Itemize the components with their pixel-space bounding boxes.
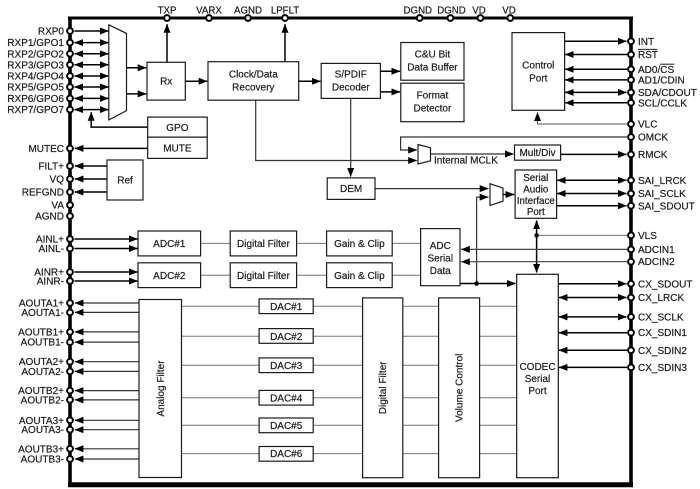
svg-text:VLC: VLC [638, 120, 657, 131]
svg-text:Volume Control: Volume Control [455, 354, 466, 422]
svg-text:AD1/CDIN: AD1/CDIN [638, 75, 685, 86]
svg-text:AOUTA1-: AOUTA1- [21, 308, 64, 319]
svg-text:DGND: DGND [437, 5, 466, 16]
svg-text:RXP1/GPO1: RXP1/GPO1 [7, 38, 64, 49]
svg-text:VA: VA [51, 201, 64, 212]
svg-text:Analog Filter: Analog Filter [156, 360, 167, 417]
svg-text:RXP6/GPO6: RXP6/GPO6 [7, 94, 64, 105]
svg-text:AOUTB1-: AOUTB1- [21, 338, 64, 349]
svg-text:LPFLT: LPFLT [271, 5, 299, 16]
svg-text:VARX: VARX [196, 5, 222, 16]
svg-text:S/PDIF: S/PDIF [335, 70, 367, 81]
svg-text:Gain & Clip: Gain & Clip [334, 271, 385, 282]
svg-text:Port: Port [527, 207, 545, 218]
svg-text:REFGND: REFGND [22, 188, 64, 199]
svg-text:RXP5/GPO5: RXP5/GPO5 [7, 83, 64, 94]
svg-text:AGND: AGND [234, 5, 262, 16]
svg-text:DAC#1: DAC#1 [270, 302, 303, 313]
svg-text:SCL/CCLK: SCL/CCLK [638, 98, 687, 109]
svg-text:RXP0: RXP0 [38, 27, 65, 38]
svg-text:Serial: Serial [525, 374, 551, 385]
svg-text:Audio: Audio [523, 185, 549, 196]
svg-text:CX_SCLK: CX_SCLK [638, 312, 684, 323]
svg-text:VD: VD [472, 5, 485, 16]
svg-text:DAC#3: DAC#3 [270, 361, 303, 372]
svg-text:VD: VD [502, 5, 515, 16]
svg-text:Internal MCLK: Internal MCLK [434, 156, 498, 167]
svg-text:ADCIN1: ADCIN1 [638, 245, 675, 256]
svg-text:DEM: DEM [340, 184, 362, 195]
svg-text:Serial: Serial [428, 254, 454, 265]
svg-text:SAI_LRCK: SAI_LRCK [638, 176, 687, 187]
svg-text:Rx: Rx [160, 77, 172, 88]
svg-text:CX_LRCK: CX_LRCK [638, 293, 684, 304]
svg-text:RXP3/GPO3: RXP3/GPO3 [7, 60, 64, 71]
svg-text:RXP4/GPO4: RXP4/GPO4 [7, 72, 64, 83]
svg-text:C&U Bit: C&U Bit [415, 50, 451, 61]
svg-text:Control: Control [522, 61, 554, 72]
svg-text:Ref: Ref [117, 176, 133, 187]
svg-text:CX_SDIN2: CX_SDIN2 [638, 346, 687, 357]
svg-text:FILT+: FILT+ [38, 162, 64, 173]
svg-text:AGND: AGND [35, 212, 64, 223]
svg-text:Port: Port [529, 74, 548, 85]
svg-text:Digital Filter: Digital Filter [237, 271, 290, 282]
svg-text:Clock/Data: Clock/Data [229, 70, 278, 81]
svg-text:AOUTA2-: AOUTA2- [21, 367, 64, 378]
svg-text:AOUTA3-: AOUTA3- [21, 425, 64, 436]
svg-text:DAC#5: DAC#5 [270, 421, 303, 432]
svg-text:Format: Format [417, 91, 449, 102]
svg-text:DAC#2: DAC#2 [270, 332, 303, 343]
svg-text:DGND: DGND [404, 5, 433, 16]
svg-text:Interface: Interface [517, 196, 556, 207]
svg-text:CX_SDIN3: CX_SDIN3 [638, 363, 687, 374]
svg-text:CX_SDOUT: CX_SDOUT [638, 279, 692, 290]
svg-text:ADC#2: ADC#2 [153, 271, 186, 282]
svg-text:SAI_SDOUT: SAI_SDOUT [638, 201, 695, 212]
svg-text:Port: Port [528, 386, 547, 397]
svg-text:AINR-: AINR- [37, 277, 64, 288]
svg-text:MUTE: MUTE [163, 143, 192, 154]
svg-text:CX_SDIN1: CX_SDIN1 [638, 328, 687, 339]
svg-text:INT: INT [638, 37, 654, 48]
svg-text:RST: RST [638, 50, 658, 61]
svg-text:GPO: GPO [166, 123, 188, 134]
svg-text:Detector: Detector [414, 104, 452, 115]
svg-text:AD0/CS: AD0/CS [638, 65, 674, 76]
svg-text:VQ: VQ [50, 175, 65, 186]
svg-text:RXP2/GPO2: RXP2/GPO2 [7, 49, 64, 60]
svg-text:ADC: ADC [430, 241, 451, 252]
svg-text:DAC#4: DAC#4 [270, 393, 303, 404]
svg-text:Data Buffer: Data Buffer [407, 63, 458, 74]
svg-text:RXP7/GPO7: RXP7/GPO7 [7, 105, 64, 116]
svg-text:Digital Filter: Digital Filter [378, 361, 389, 414]
svg-text:AOUTB3-: AOUTB3- [21, 455, 64, 466]
svg-text:Data: Data [430, 266, 452, 277]
svg-text:AINL-: AINL- [38, 244, 64, 255]
svg-text:ADC#1: ADC#1 [153, 239, 186, 250]
svg-text:OMCK: OMCK [638, 133, 668, 144]
svg-text:TXP: TXP [158, 5, 177, 16]
svg-text:SDA/CDOUT: SDA/CDOUT [638, 88, 697, 99]
svg-text:RMCK: RMCK [638, 150, 668, 161]
svg-text:Recovery: Recovery [232, 83, 274, 94]
svg-text:Mult/Div: Mult/Div [519, 148, 555, 159]
svg-text:VLS: VLS [638, 231, 657, 242]
svg-text:Digital Filter: Digital Filter [237, 239, 290, 250]
svg-text:Gain & Clip: Gain & Clip [334, 239, 385, 250]
svg-text:Decoder: Decoder [332, 83, 370, 94]
svg-text:DAC#6: DAC#6 [270, 449, 303, 460]
svg-text:CODEC: CODEC [519, 362, 555, 373]
svg-text:ADCIN2: ADCIN2 [638, 257, 675, 268]
svg-text:MUTEC: MUTEC [28, 144, 64, 155]
svg-text:Serial: Serial [523, 173, 548, 184]
svg-text:SAI_SCLK: SAI_SCLK [638, 189, 686, 200]
svg-text:AOUTB2-: AOUTB2- [21, 395, 64, 406]
